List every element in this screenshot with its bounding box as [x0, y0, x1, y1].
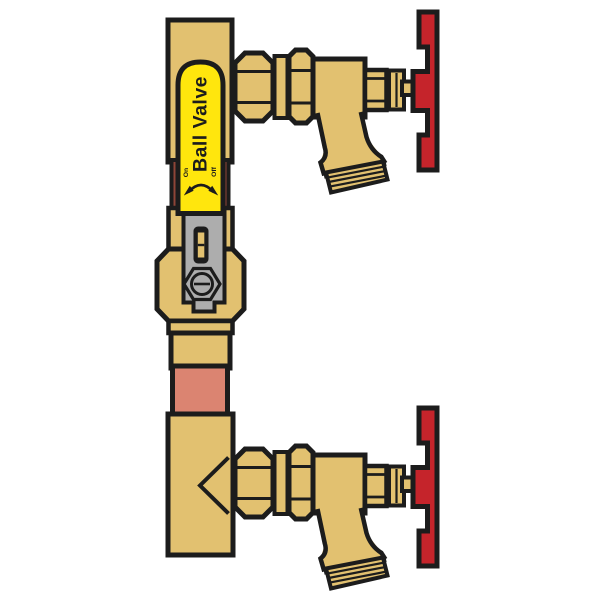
ball-valve-piping-diagram: Ball Valve On Off [0, 0, 600, 600]
bottom-union-ring [275, 452, 288, 514]
top-valve-body [313, 59, 365, 117]
top-hose-bibb-assembly [235, 12, 437, 193]
top-bonnet-hex [365, 70, 387, 110]
top-hex-fitting [235, 53, 273, 121]
bottom-union-nut [289, 446, 313, 519]
tag-on-label: On [183, 168, 190, 177]
brass-pipe-segment [171, 333, 230, 368]
bottom-hex-fitting [235, 449, 273, 517]
tag-off-label: Off [211, 166, 218, 177]
piping-diagram-canvas: Ball Valve On Off [0, 0, 600, 600]
bottom-hose-bibb-assembly [235, 408, 437, 589]
copper-pipe-segment [173, 366, 228, 414]
bottom-bonnet-hex [365, 466, 387, 506]
ball-valve-lever [184, 212, 225, 312]
bottom-valve-body [313, 455, 365, 513]
tag-label: Ball Valve [190, 76, 212, 172]
ball-valve-tag: Ball Valve On Off [178, 62, 223, 214]
top-handle-wheel [413, 12, 437, 170]
top-union-ring [275, 56, 288, 118]
bottom-handle-wheel [413, 408, 437, 566]
top-union-nut [289, 50, 313, 123]
